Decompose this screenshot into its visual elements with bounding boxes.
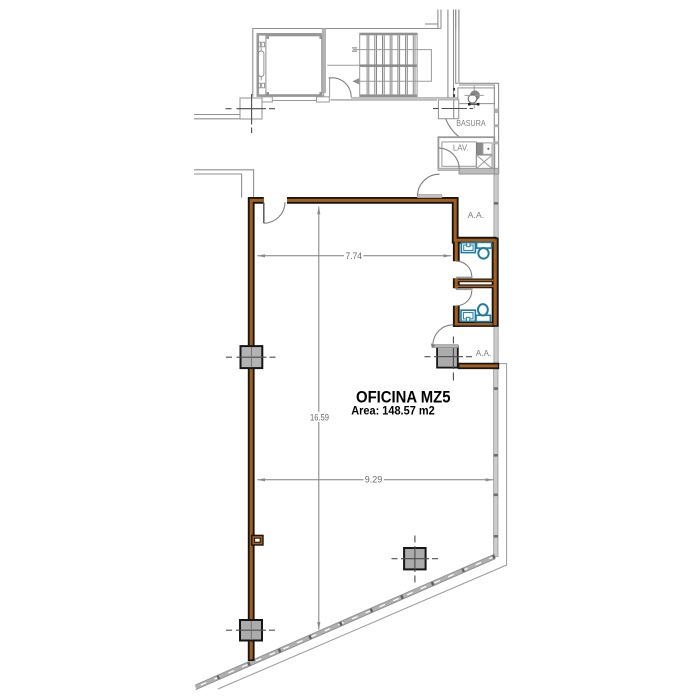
svg-text:9.29: 9.29: [365, 475, 383, 485]
svg-text:A.A.: A.A.: [468, 210, 485, 220]
svg-text:LAV.: LAV.: [453, 143, 469, 153]
svg-text:7.74: 7.74: [346, 251, 363, 261]
svg-text:BASURA: BASURA: [456, 118, 486, 128]
svg-text:A.A.: A.A.: [476, 348, 492, 358]
svg-text:16.59: 16.59: [310, 413, 329, 423]
svg-text:Area: 148.57 m2: Area: 148.57 m2: [351, 405, 435, 418]
